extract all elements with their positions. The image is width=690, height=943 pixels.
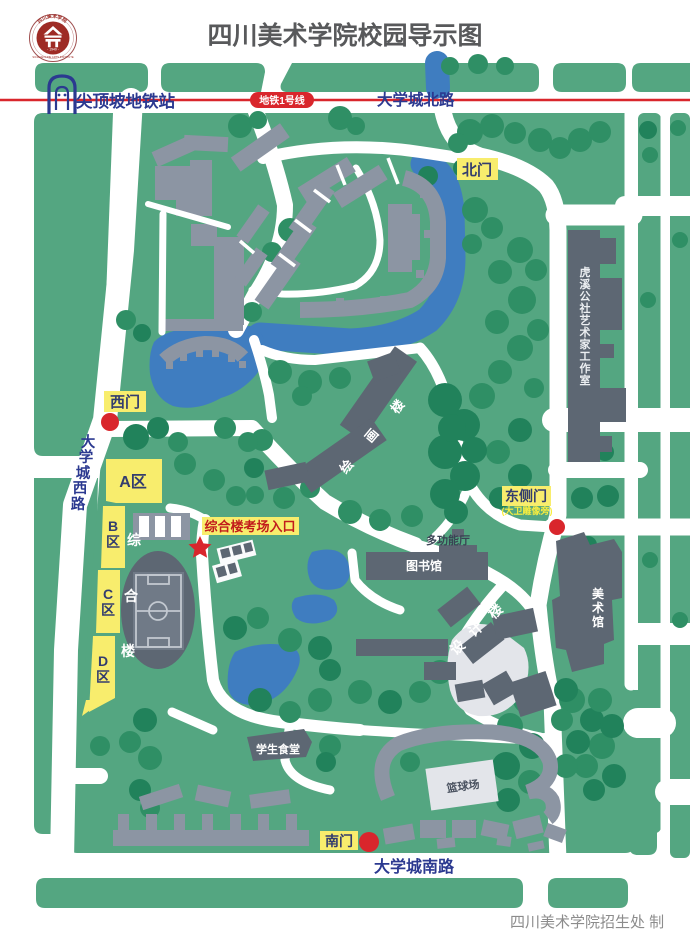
svg-text:学: 学 [79, 448, 94, 466]
svg-text:南门: 南门 [325, 833, 353, 849]
svg-text:(大卫雕像旁): (大卫雕像旁) [502, 505, 553, 516]
svg-text:馆: 馆 [592, 614, 604, 629]
svg-text:社: 社 [579, 301, 591, 315]
svg-text:作: 作 [580, 361, 591, 375]
svg-text:大学城北路: 大学城北路 [377, 90, 455, 109]
svg-text:区: 区 [106, 534, 120, 550]
svg-text:SICHUAN FINE ARTS INSTITUTE: SICHUAN FINE ARTS INSTITUTE [32, 55, 74, 59]
svg-text:城: 城 [76, 464, 91, 482]
svg-text:尖顶坡地铁站: 尖顶坡地铁站 [76, 91, 176, 111]
svg-text:东侧门: 东侧门 [505, 488, 547, 504]
svg-text:溪: 溪 [580, 277, 592, 291]
svg-text:楼: 楼 [121, 643, 135, 659]
svg-text:路: 路 [71, 495, 86, 513]
svg-text:西: 西 [73, 480, 88, 497]
svg-text:大: 大 [81, 433, 96, 451]
svg-text:术: 术 [591, 600, 604, 615]
svg-text:北门: 北门 [462, 161, 492, 179]
svg-text:大学城南路: 大学城南路 [374, 857, 455, 876]
svg-text:区: 区 [96, 669, 110, 685]
svg-text:A区: A区 [119, 473, 147, 491]
svg-text:综: 综 [127, 532, 141, 548]
svg-text:C: C [103, 586, 113, 602]
svg-text:多功能厅: 多功能厅 [426, 533, 470, 547]
svg-text:西门: 西门 [110, 393, 140, 411]
svg-text:四川美术学院校园导示图: 四川美术学院校园导示图 [207, 21, 482, 50]
svg-text:D: D [98, 653, 108, 669]
svg-text:术: 术 [579, 325, 591, 339]
svg-text:四川美术学院招生处 制: 四川美术学院招生处 制 [510, 913, 664, 931]
svg-text:室: 室 [580, 373, 591, 387]
svg-text:地铁1号线: 地铁1号线 [259, 94, 305, 107]
svg-text:工: 工 [580, 350, 591, 363]
svg-text:学生食堂: 学生食堂 [256, 742, 300, 756]
svg-text:家: 家 [580, 337, 592, 351]
svg-text:公: 公 [580, 290, 591, 303]
svg-text:图书馆: 图书馆 [406, 558, 442, 573]
svg-text:美: 美 [592, 586, 605, 601]
svg-text:合: 合 [124, 588, 139, 604]
svg-text:艺: 艺 [580, 313, 591, 327]
svg-text:综合楼考场入口: 综合楼考场入口 [204, 519, 295, 534]
svg-text:区: 区 [101, 602, 115, 618]
svg-text:B: B [108, 518, 118, 534]
svg-text:- 1940 -: - 1940 - [47, 48, 59, 52]
svg-text:虎: 虎 [580, 265, 591, 279]
